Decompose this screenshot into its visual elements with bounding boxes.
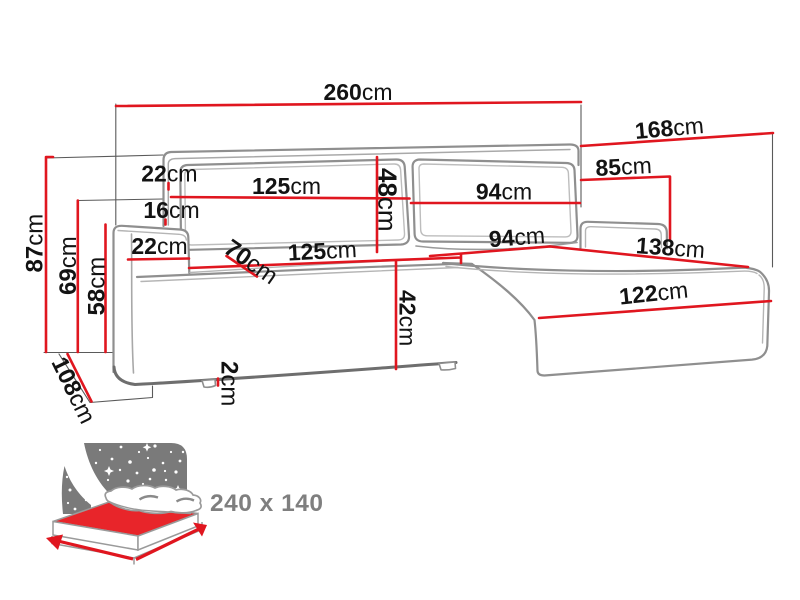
svg-text:94cm: 94cm bbox=[476, 179, 532, 205]
svg-text:22cm: 22cm bbox=[131, 233, 187, 259]
svg-text:22cm: 22cm bbox=[141, 161, 197, 187]
svg-text:16cm: 16cm bbox=[143, 197, 199, 223]
svg-text:87cm: 87cm bbox=[22, 214, 49, 273]
svg-text:125cm: 125cm bbox=[252, 173, 321, 199]
svg-text:125cm: 125cm bbox=[287, 236, 357, 266]
svg-text:42cm: 42cm bbox=[394, 290, 420, 346]
svg-text:240 x 140: 240 x 140 bbox=[210, 490, 324, 517]
svg-text:48cm: 48cm bbox=[373, 168, 403, 232]
svg-text:58cm: 58cm bbox=[83, 257, 110, 316]
svg-text:69cm: 69cm bbox=[55, 236, 82, 295]
svg-text:2cm: 2cm bbox=[216, 361, 243, 406]
svg-text:94cm: 94cm bbox=[488, 222, 546, 252]
svg-text:260cm: 260cm bbox=[323, 79, 392, 105]
svg-text:138cm: 138cm bbox=[635, 232, 706, 263]
svg-text:85cm: 85cm bbox=[595, 152, 653, 181]
